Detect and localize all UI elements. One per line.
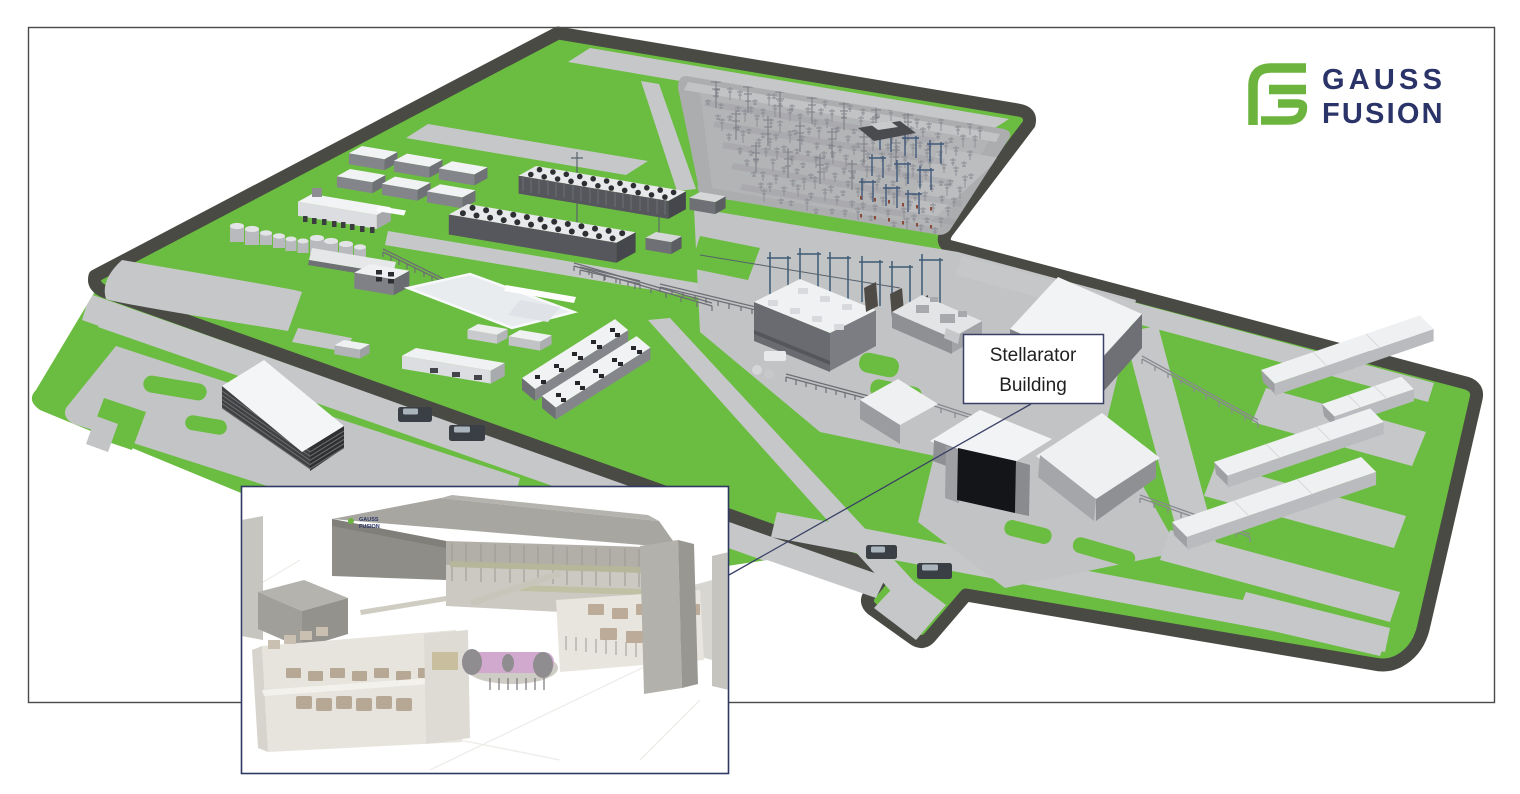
svg-text:FUSION: FUSION (1322, 98, 1445, 130)
svg-text:Building: Building (999, 375, 1067, 396)
svg-text:GAUSS: GAUSS (359, 517, 379, 523)
svg-text:Stellarator: Stellarator (990, 345, 1077, 366)
svg-text:GAUSS: GAUSS (1322, 64, 1446, 96)
svg-text:FUSION: FUSION (359, 524, 380, 530)
